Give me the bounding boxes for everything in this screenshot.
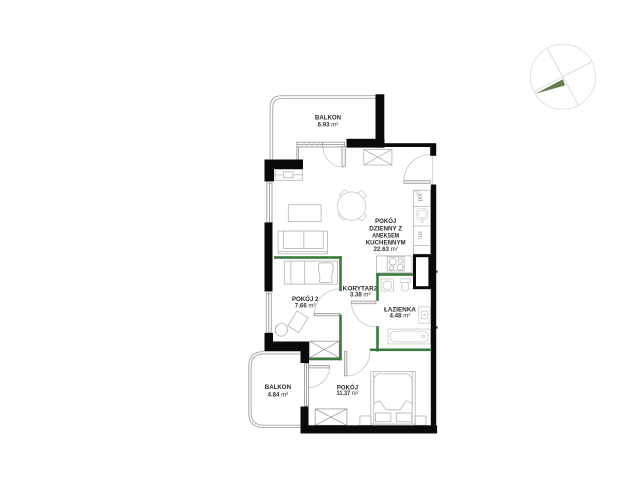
svg-text:KORYTARZ: KORYTARZ	[343, 285, 378, 292]
svg-text:BALKON: BALKON	[265, 384, 292, 391]
svg-text:4.84 m²: 4.84 m²	[268, 392, 289, 398]
svg-text:3.38 m²: 3.38 m²	[350, 293, 371, 299]
svg-text:4.48 m²: 4.48 m²	[390, 314, 411, 320]
svg-text:lod.: lod.	[417, 194, 423, 204]
svg-text:22.63 m²: 22.63 m²	[374, 247, 398, 253]
svg-text:ANEKSEM: ANEKSEM	[372, 232, 399, 239]
svg-text:7.66 m²: 7.66 m²	[295, 304, 316, 310]
svg-text:POKÓJ: POKÓJ	[375, 216, 397, 225]
svg-text:11.37 m²: 11.37 m²	[337, 391, 359, 397]
svg-text:6.93 m²: 6.93 m²	[318, 123, 339, 129]
svg-text:POKÓJ 2: POKÓJ 2	[292, 294, 319, 303]
svg-text:zm.: zm.	[417, 231, 423, 241]
svg-text:DZIENNY Z: DZIENNY Z	[369, 225, 402, 232]
svg-text:ŁAZIENKA: ŁAZIENKA	[384, 306, 416, 313]
svg-text:KUCHENNYM: KUCHENNYM	[366, 239, 406, 246]
svg-text:BALKON: BALKON	[315, 114, 342, 121]
